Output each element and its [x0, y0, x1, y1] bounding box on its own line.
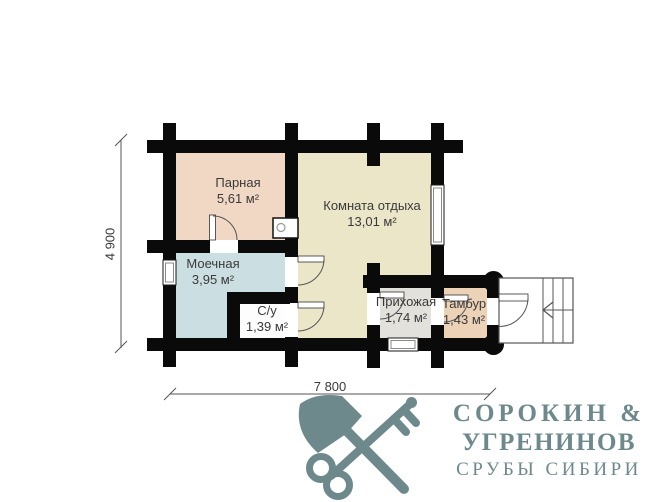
label-su: С/у 1,39 м²: [246, 303, 288, 335]
floor-plan-page: Парная 5,61 м² Комната отдыха 13,01 м² М…: [0, 0, 667, 502]
room-area: 1,74 м²: [376, 310, 436, 326]
label-parnaya: Парная 5,61 м²: [215, 175, 260, 207]
dimension-width-label: 7 800: [314, 379, 347, 394]
room-name: Тамбур: [442, 296, 486, 312]
label-komnata: Комната отдыха 13,01 м²: [323, 198, 421, 230]
room-area: 1,43 м²: [442, 312, 486, 328]
room-area: 13,01 м²: [323, 214, 421, 230]
window-moechnaya: [163, 260, 176, 285]
dimension-height-label: 4 900: [103, 228, 118, 261]
room-area: 5,61 м²: [215, 191, 260, 207]
logo-company-line1: СОРОКИН &: [433, 399, 665, 428]
label-tambur: Тамбур 1,43 м²: [442, 296, 486, 328]
room-name: Парная: [215, 175, 260, 191]
logo-icon: [299, 395, 417, 497]
stairs: [499, 278, 573, 343]
label-moechnaya: Моечная 3,95 м²: [186, 256, 239, 288]
room-name: С/у: [246, 303, 288, 319]
room-area: 3,95 м²: [186, 272, 239, 288]
window-komnata: [431, 185, 444, 245]
logo-tagline: СРУБЫ СИБИРИ: [433, 458, 665, 482]
room-name: Комната отдыха: [323, 198, 421, 214]
window-prihozhaya: [388, 338, 418, 351]
room-name: Моечная: [186, 256, 239, 272]
logo: СОРОКИН & УГРЕНИНОВ СРУБЫ СИБИРИ: [433, 399, 665, 482]
label-prihozhaya: Прихожая 1,74 м²: [376, 294, 436, 326]
logo-company-line2: УГРЕНИНОВ: [433, 428, 665, 458]
stove-firebox: [277, 224, 285, 232]
room-area: 1,39 м²: [246, 319, 288, 335]
stove: [273, 218, 298, 238]
room-name: Прихожая: [376, 294, 436, 310]
door-opening-parnaya: [210, 240, 238, 253]
